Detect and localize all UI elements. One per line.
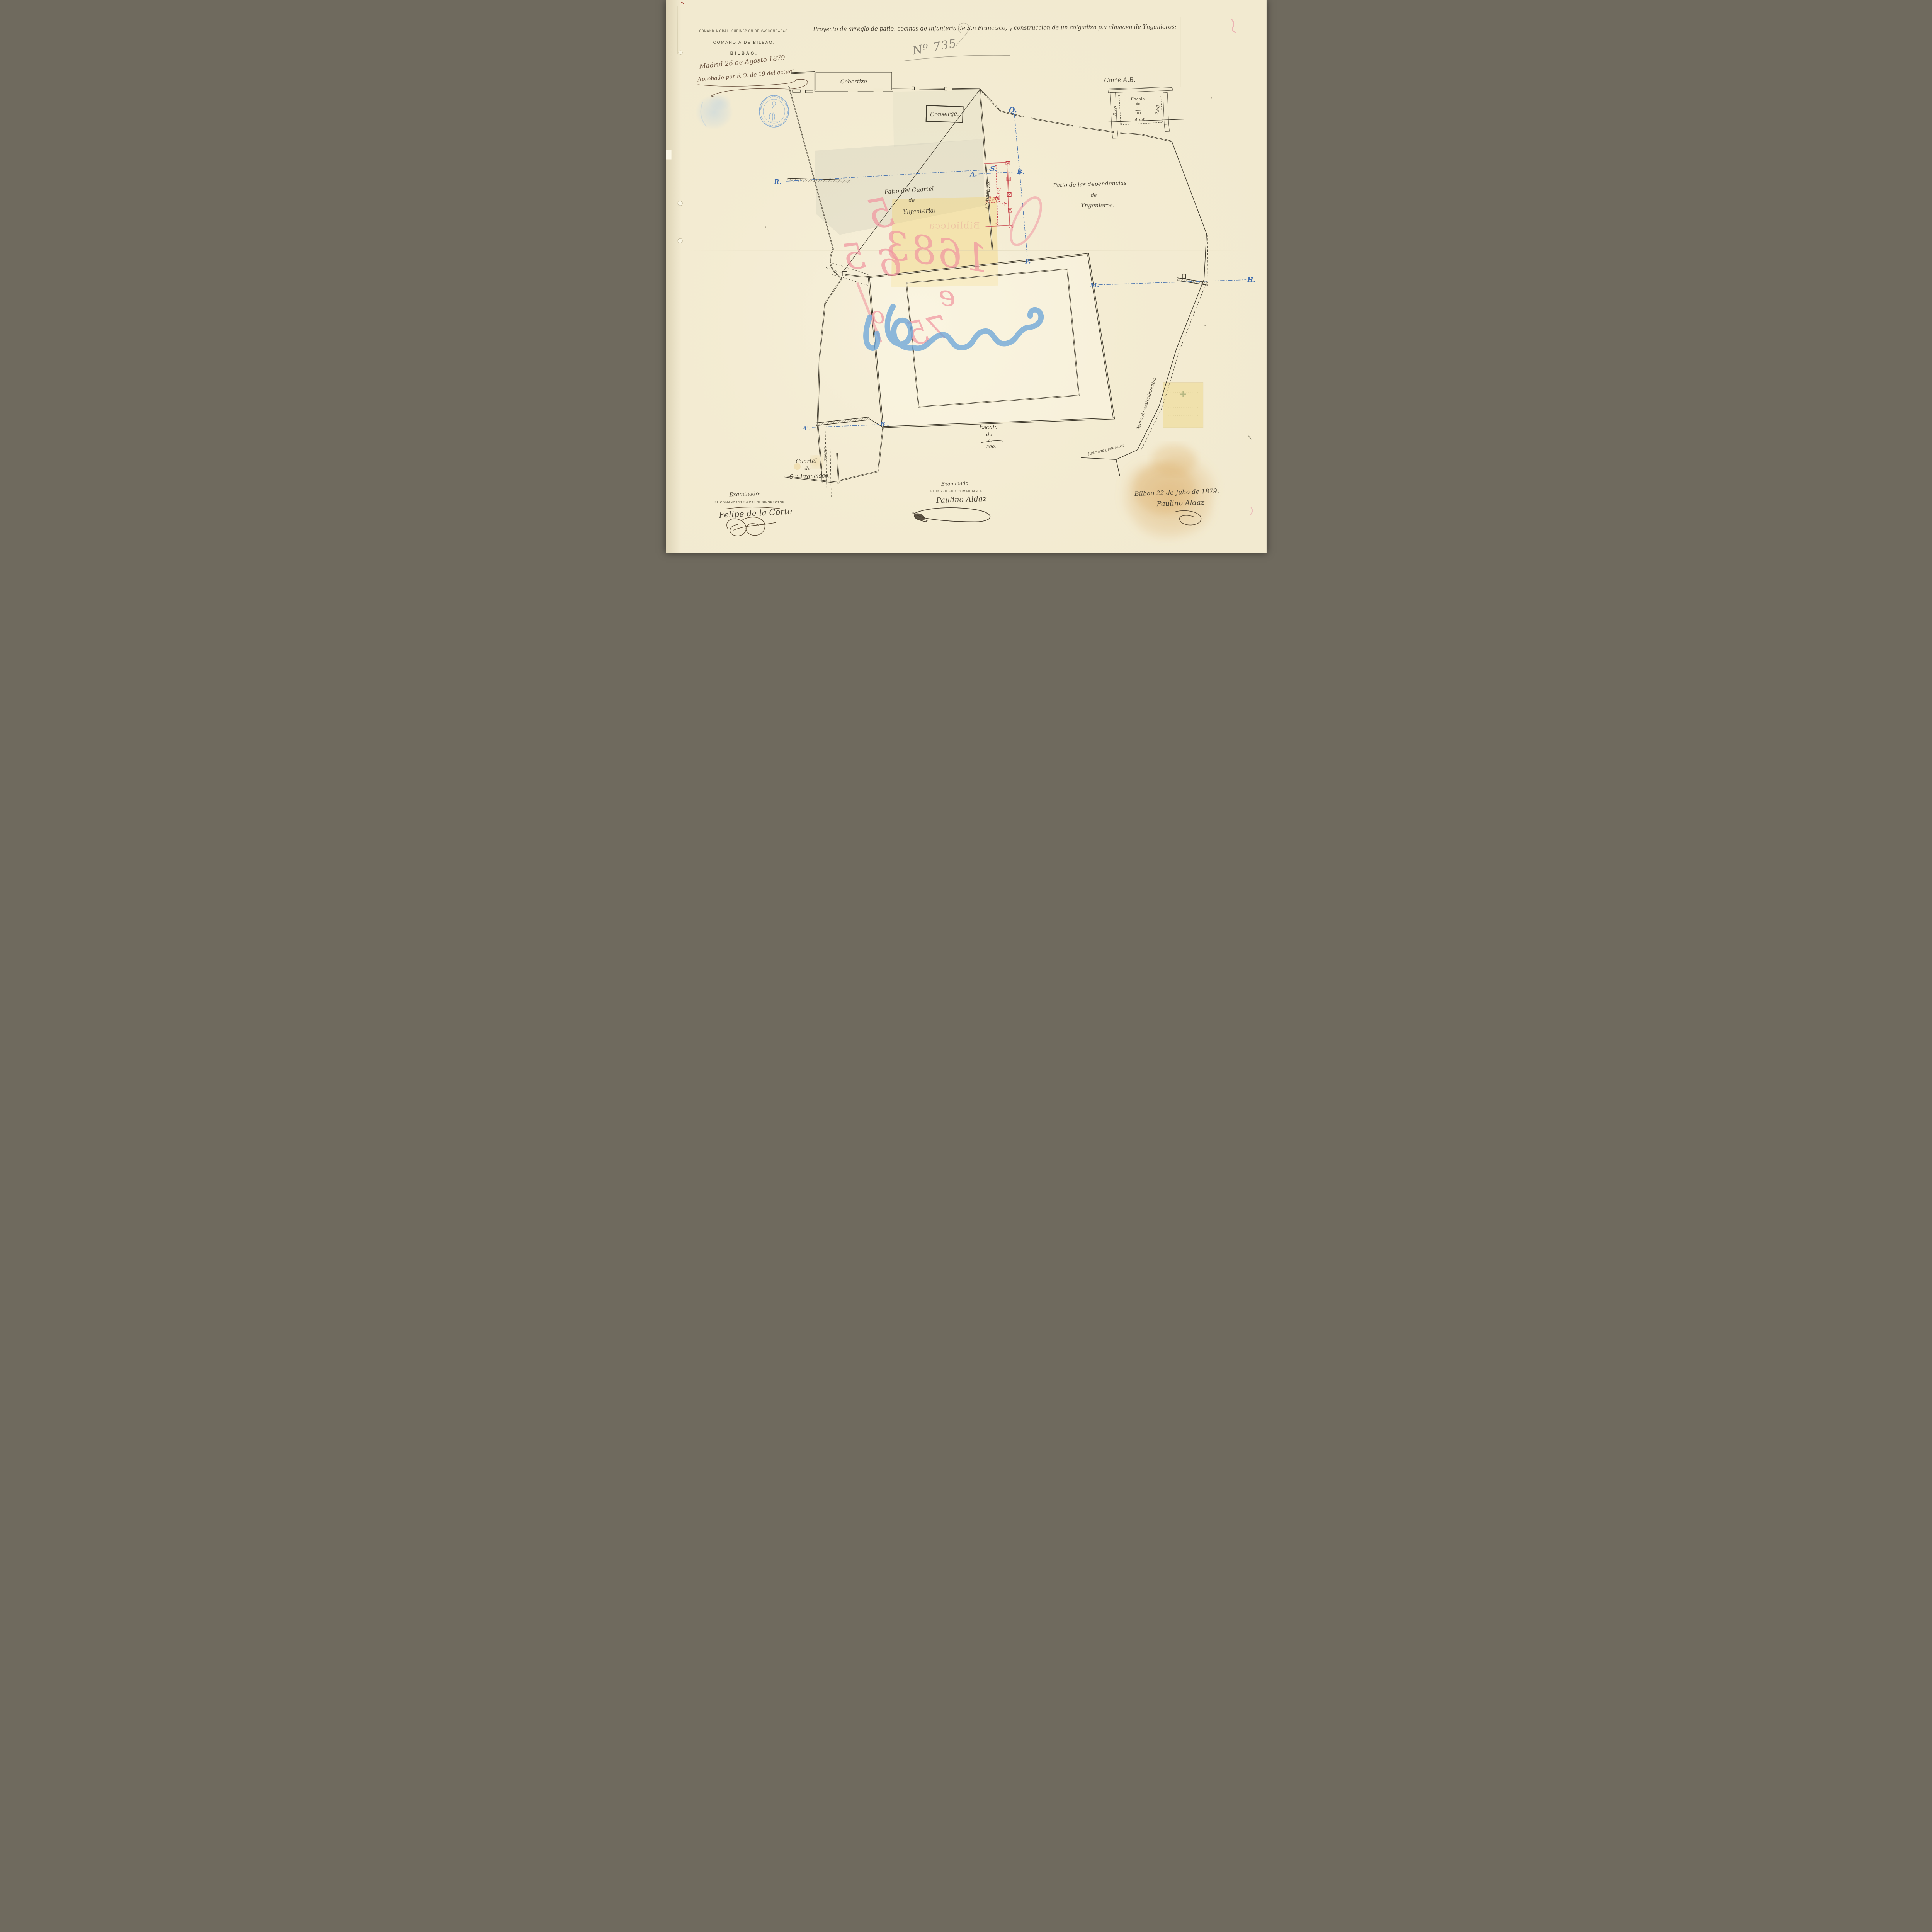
left-role: EL COMANDANTE GRAL SUBINSPECTOR.: [714, 500, 786, 505]
chalk-print-bleed: Biblioteca: [929, 221, 980, 231]
letter-P: P.: [1024, 258, 1031, 265]
cuneta-label: Cuneta: [823, 447, 828, 461]
corte-escala-den: 100: [1135, 111, 1141, 115]
corte-escala-l1: Escala: [1131, 97, 1145, 102]
cuartel-l1: Cuartel: [795, 458, 817, 465]
escala-den: 200.: [986, 444, 996, 449]
letter-A: A.: [969, 171, 977, 178]
chalk-5b: 5: [840, 235, 867, 279]
corte-title: Corte A.B.: [1104, 76, 1136, 83]
letter-B-prime: B'.: [880, 421, 889, 428]
right-signature: Paulino Aldaz: [1156, 498, 1205, 508]
office-line1: COMAND.A GRAL. SUBINSP.ON DE VASCONGADAS…: [699, 29, 789, 34]
cobertizo-top-label: Cobertizo: [840, 78, 867, 85]
office-line2: COMAND.A DE BILBAO.: [713, 41, 775, 45]
escala-l1: Escala: [979, 424, 998, 430]
punch-hole: [678, 201, 682, 206]
paper-left-edge: [666, 0, 681, 553]
letter-H: H.: [1247, 276, 1255, 284]
escala-num: 1.: [987, 438, 992, 443]
letter-M: M.: [1090, 282, 1099, 289]
corte-escala-num: 1: [1137, 106, 1139, 110]
corte-dim-bottom: 4.mt: [1134, 117, 1145, 122]
stamp-star-icon: ✶: [773, 118, 775, 121]
paper-patch: [1163, 383, 1203, 428]
punch-hole: [679, 51, 682, 54]
letter-R: R.: [774, 178, 781, 185]
conserje-label: Conserge.: [930, 111, 959, 118]
letter-Q: Q.: [1009, 106, 1017, 114]
office-line3: BILBAO.: [730, 51, 758, 56]
scanned-plan-page: 16.mt 4.mt Cobertizo. R. S. A. B. Q. P. …: [666, 0, 1267, 553]
chalk-e: e: [938, 279, 955, 313]
patio-inf-l2: de: [908, 198, 915, 204]
letter-S: S.: [990, 165, 997, 173]
left-examinado: Examinado:: [729, 491, 760, 498]
center-role: EL INGENIERO COMANDANTE: [930, 489, 983, 493]
letter-A-prime: A'.: [801, 425, 810, 432]
plan-drawing-canvas: 16.mt 4.mt Cobertizo. R. S. A. B. Q. P. …: [666, 0, 1267, 553]
patio-ing-l2: de: [1090, 192, 1096, 198]
punch-hole: [678, 238, 682, 243]
center-signature: Paulino Aldaz: [935, 495, 987, 505]
cuartel-l2: de: [804, 466, 810, 471]
escala-l2: de: [986, 432, 992, 437]
patio-ing-l3: Yngenieros.: [1081, 202, 1114, 209]
center-examinado: Examinado:: [940, 480, 970, 487]
corte-escala-l2: de: [1136, 102, 1140, 106]
letter-B: B.: [1017, 168, 1024, 175]
